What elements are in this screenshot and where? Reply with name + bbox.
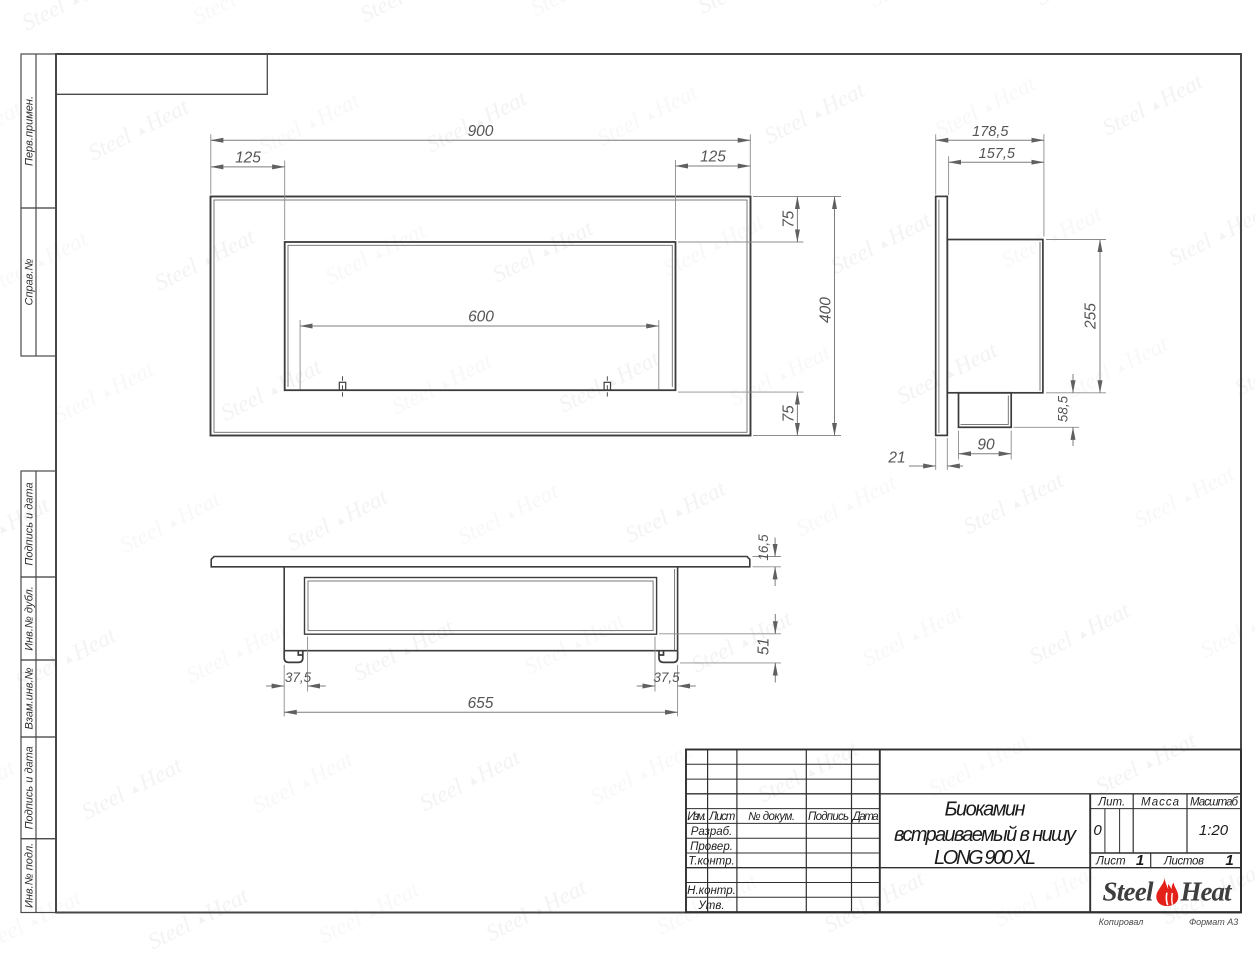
svg-text:Инв.№ дубл.: Инв.№ дубл. (24, 586, 36, 651)
svg-text:Т.контр.: Т.контр. (688, 856, 734, 868)
svg-text:Разраб.: Разраб. (691, 826, 733, 838)
svg-text:400: 400 (818, 297, 835, 323)
svg-text:157,5: 157,5 (979, 146, 1016, 162)
svg-text:Перв.примен.: Перв.примен. (24, 96, 36, 166)
svg-text:16,5: 16,5 (756, 534, 771, 561)
svg-text:1: 1 (1136, 852, 1144, 869)
svg-text:Формат А3: Формат А3 (1189, 917, 1238, 927)
svg-text:90: 90 (977, 436, 995, 453)
svg-text:600: 600 (468, 309, 494, 326)
svg-text:Копировал: Копировал (1099, 917, 1144, 927)
svg-text:Подпись и дата: Подпись и дата (24, 482, 36, 565)
svg-text:Биокамин: Биокамин (945, 799, 1026, 821)
svg-text:Инв.№ подл.: Инв.№ подл. (24, 843, 36, 908)
svg-text:Провер.: Провер. (690, 841, 733, 853)
svg-text:0: 0 (1093, 822, 1102, 839)
svg-text:Подпись: Подпись (808, 811, 849, 823)
svg-text:1: 1 (1225, 852, 1233, 869)
svg-text:встраиваемый в нишу: встраиваемый в нишу (894, 824, 1077, 846)
svg-text:Утв.: Утв. (697, 900, 724, 912)
svg-text:37,5: 37,5 (653, 670, 680, 685)
svg-text:Дата: Дата (851, 811, 879, 823)
svg-text:75: 75 (780, 210, 797, 228)
svg-text:900: 900 (468, 123, 494, 140)
svg-text:Листов: Листов (1163, 856, 1204, 868)
svg-text:255: 255 (1083, 303, 1100, 330)
svg-text:125: 125 (700, 149, 726, 166)
svg-text:51: 51 (756, 638, 773, 655)
svg-text:37,5: 37,5 (285, 670, 312, 685)
svg-text:655: 655 (468, 695, 494, 712)
svg-text:Heat: Heat (1180, 877, 1233, 907)
svg-text:21: 21 (887, 450, 905, 467)
svg-text:Изм.: Изм. (687, 811, 706, 823)
svg-text:Н.контр.: Н.контр. (687, 885, 736, 897)
svg-text:Взам.инв.№: Взам.инв.№ (24, 667, 36, 729)
svg-text:Масштаб: Масштаб (1190, 797, 1239, 809)
svg-text:Масса: Масса (1141, 797, 1179, 809)
svg-text:1:20: 1:20 (1199, 822, 1229, 839)
svg-text:Подпись и дата: Подпись и дата (24, 746, 36, 829)
svg-text:125: 125 (235, 150, 261, 167)
svg-text:Steel: Steel (1103, 877, 1154, 907)
svg-text:LONG 900 XL: LONG 900 XL (934, 847, 1036, 869)
svg-text:58,5: 58,5 (1056, 395, 1071, 422)
svg-text:75: 75 (780, 405, 797, 423)
svg-text:178,5: 178,5 (972, 124, 1009, 140)
svg-text:Лит.: Лит. (1097, 797, 1125, 809)
svg-text:Лист: Лист (1095, 856, 1126, 868)
svg-text:Справ.№: Справ.№ (24, 258, 36, 305)
svg-text:№ докум.: № докум. (748, 811, 795, 823)
svg-text:Лист: Лист (708, 811, 735, 823)
